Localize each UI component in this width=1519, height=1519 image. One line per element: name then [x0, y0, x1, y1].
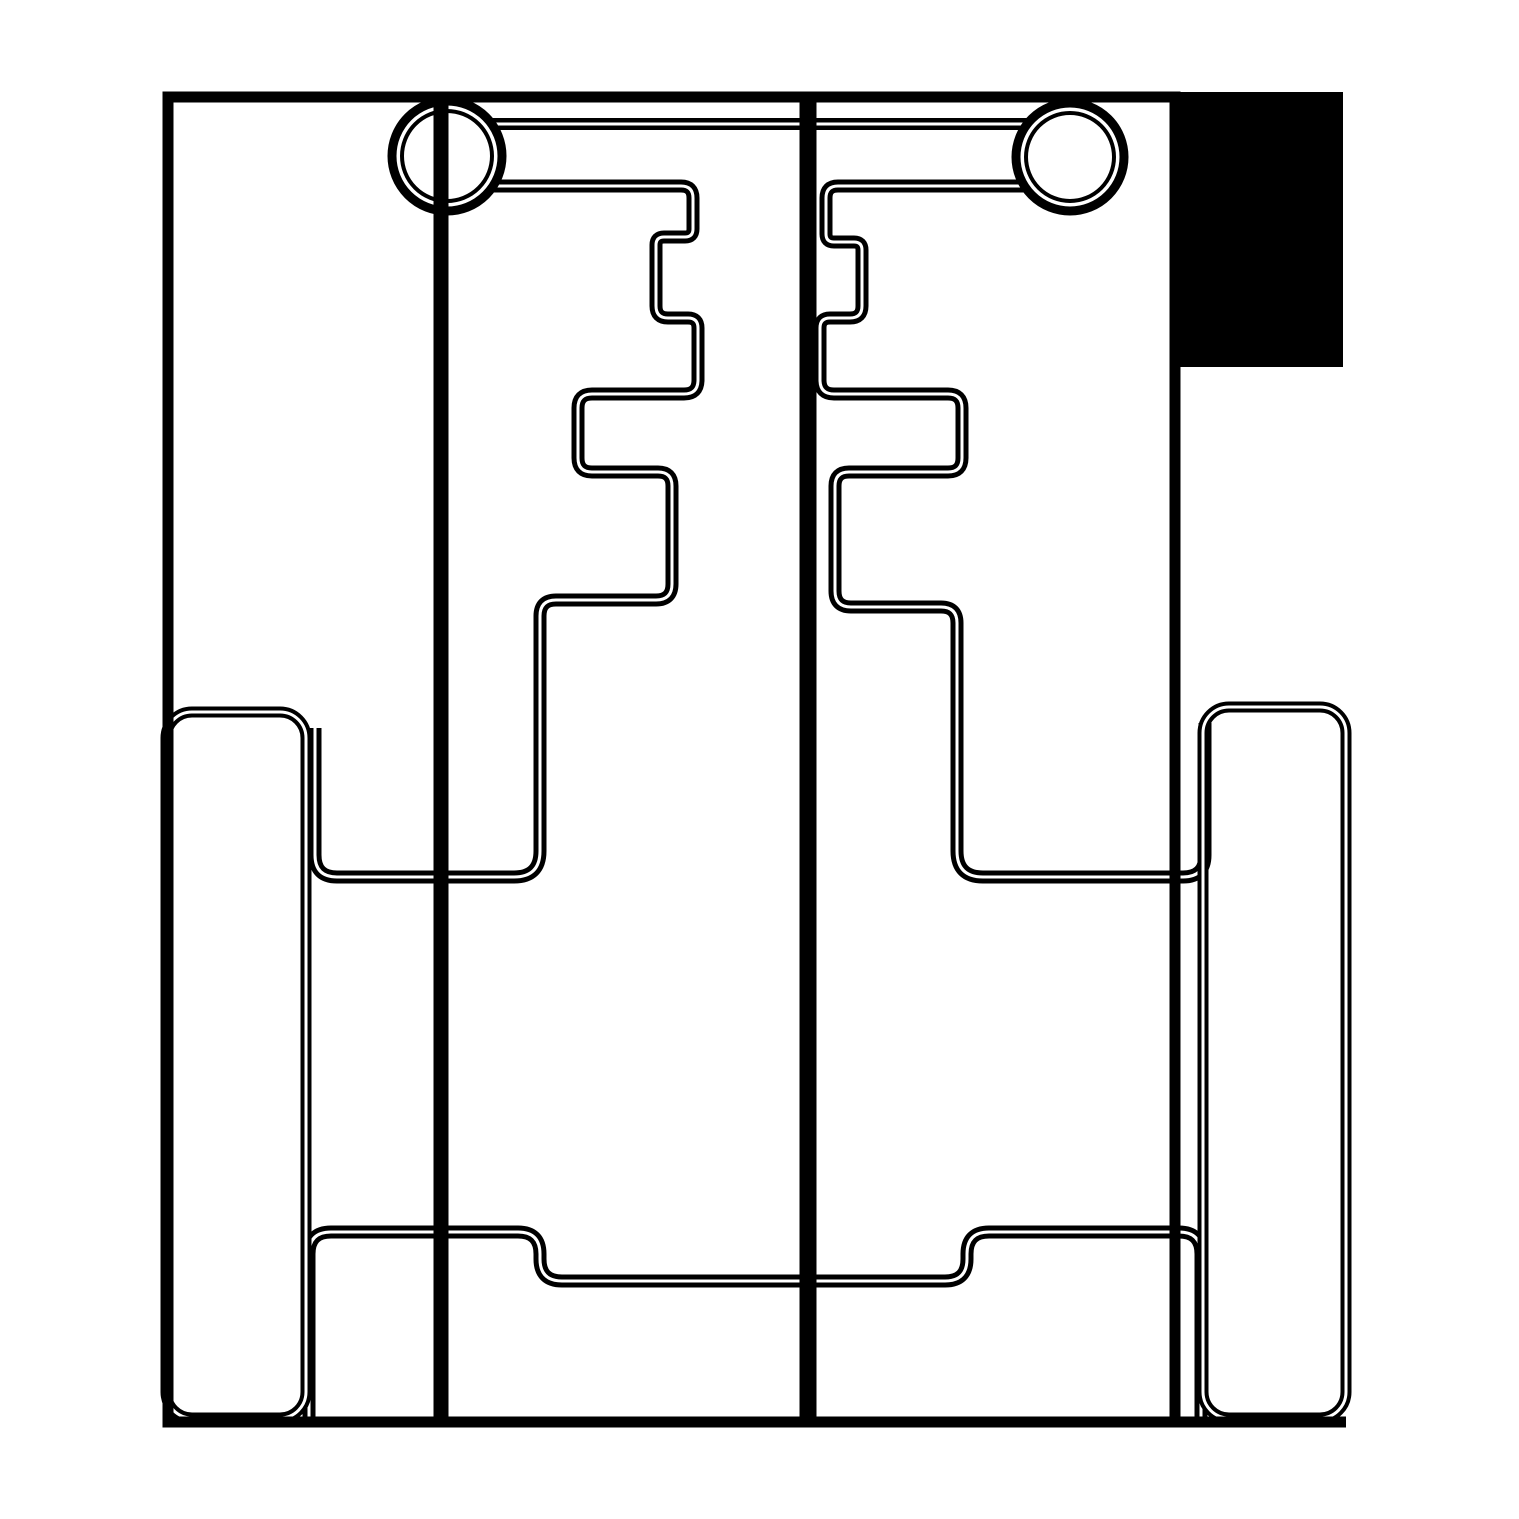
solid-block-top-right	[1170, 92, 1343, 367]
right-pin-outer-ring	[1016, 103, 1124, 211]
technical-drawing-page	[0, 0, 1519, 1519]
technical-drawing-canvas	[0, 0, 1519, 1519]
